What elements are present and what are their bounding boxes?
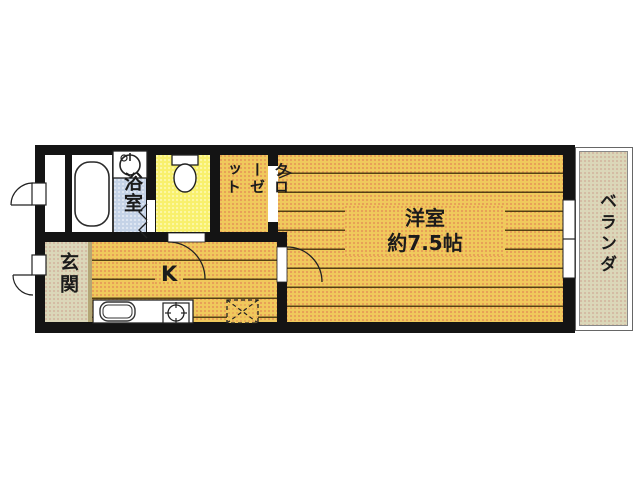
bathroom-label: 浴室 <box>119 172 146 214</box>
kitchen-label: K <box>155 262 183 286</box>
kitchen-floor <box>92 242 277 322</box>
western-room-name: 洋室 <box>345 206 505 231</box>
veranda-label: ベランダ <box>594 192 619 276</box>
interior-wall-kitchen-room <box>277 232 287 322</box>
western-room-label: 洋室 約7.5帖 <box>345 206 505 256</box>
bathroom-floor <box>72 155 112 232</box>
western-room-size: 約7.5帖 <box>345 231 505 256</box>
toilet-room-floor <box>156 155 210 232</box>
closet-label: クローゼット <box>221 162 293 212</box>
floor-plan: 浴室 クローゼット 洋室 約7.5帖 ベランダ 玄関 K <box>0 0 640 480</box>
interior-wall-horizontal <box>45 232 287 242</box>
storage-room-floor <box>45 155 65 232</box>
entrance-label: 玄関 <box>55 252 82 296</box>
